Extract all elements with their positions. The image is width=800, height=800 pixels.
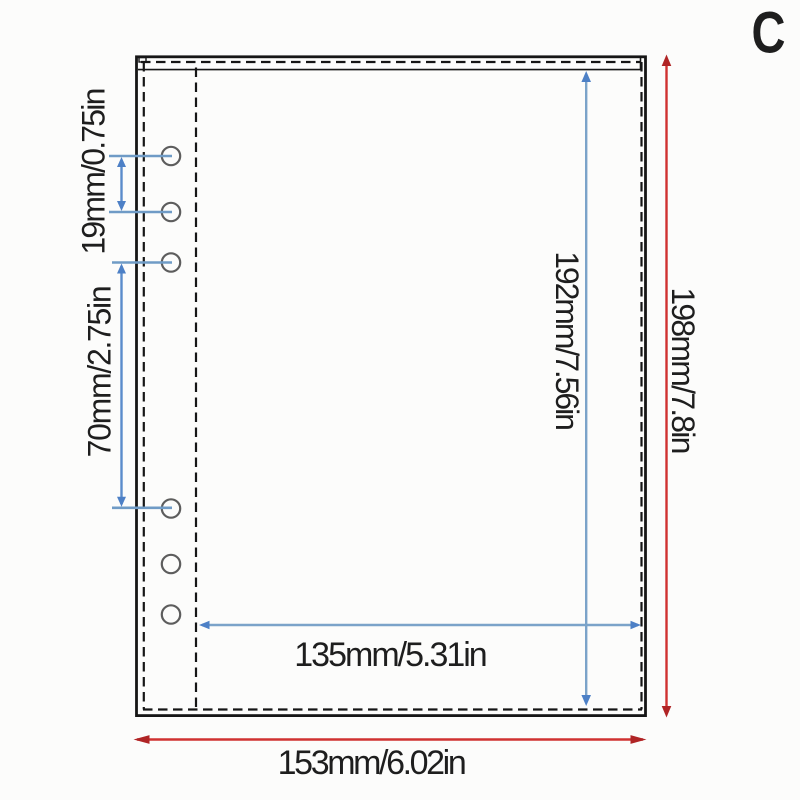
svg-text:19mm/0.75in: 19mm/0.75in (76, 89, 112, 254)
svg-text:153mm/6.02in: 153mm/6.02in (278, 744, 465, 782)
svg-text:192mm/7.56in: 192mm/7.56in (549, 251, 585, 429)
svg-text:C: C (752, 1, 786, 66)
svg-text:135mm/5.31in: 135mm/5.31in (294, 636, 486, 674)
svg-text:198mm/7.8in: 198mm/7.8in (665, 287, 701, 452)
svg-text:70mm/2.75in: 70mm/2.75in (82, 287, 118, 458)
